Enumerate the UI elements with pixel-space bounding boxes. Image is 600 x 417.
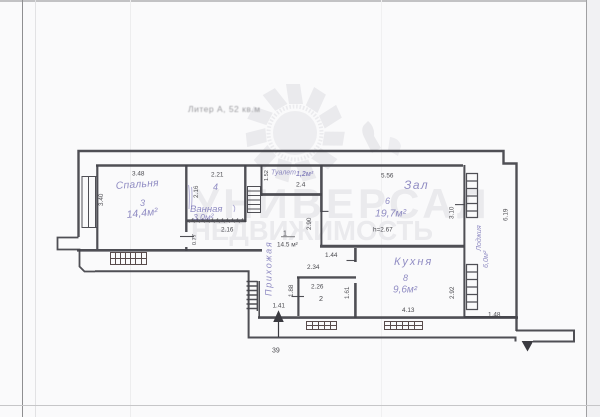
- svg-text:6,0м²: 6,0м²: [481, 250, 490, 268]
- svg-text:Спальня: Спальня: [115, 178, 159, 192]
- svg-text:Лоджия: Лоджия: [474, 225, 483, 252]
- svg-text:3,0м²: 3,0м²: [193, 212, 215, 222]
- svg-text:0.77: 0.77: [192, 234, 198, 245]
- svg-text:2.26: 2.26: [311, 284, 324, 291]
- svg-text:Зал: Зал: [404, 178, 429, 192]
- svg-text:1.52: 1.52: [264, 170, 270, 181]
- svg-text:1.61: 1.61: [344, 286, 351, 299]
- svg-text:4.13: 4.13: [402, 307, 415, 314]
- svg-text:2.21: 2.21: [211, 172, 224, 179]
- svg-text:4: 4: [213, 182, 218, 192]
- svg-text:8: 8: [403, 273, 408, 283]
- svg-text:1.48: 1.48: [488, 312, 501, 319]
- svg-text:1.41: 1.41: [273, 303, 286, 310]
- svg-text:Кухня: Кухня: [394, 256, 433, 268]
- svg-text:2.90: 2.90: [306, 217, 313, 230]
- svg-text:14,4м²: 14,4м²: [126, 206, 159, 221]
- svg-text:39: 39: [272, 348, 280, 355]
- svg-text:3.48: 3.48: [132, 171, 145, 178]
- svg-text:2: 2: [319, 294, 323, 303]
- svg-text:2.34: 2.34: [307, 264, 320, 271]
- svg-text:h=2.67: h=2.67: [373, 227, 393, 234]
- svg-text:2.4: 2.4: [296, 182, 306, 189]
- svg-text:5.56: 5.56: [381, 173, 394, 180]
- svg-text:3.40: 3.40: [98, 193, 105, 206]
- svg-text:1,2м²: 1,2м²: [296, 171, 314, 178]
- svg-text:2.16: 2.16: [193, 185, 200, 198]
- svg-text:3.10: 3.10: [449, 206, 456, 219]
- svg-text:1.44: 1.44: [325, 252, 338, 259]
- svg-text:14.5 м²: 14.5 м²: [277, 242, 298, 249]
- svg-text:2.16: 2.16: [221, 227, 234, 234]
- svg-text:Прихожая: Прихожая: [264, 241, 274, 296]
- svg-text:6: 6: [385, 196, 390, 206]
- svg-text:2.92: 2.92: [449, 286, 456, 299]
- svg-text:6.19: 6.19: [503, 208, 510, 221]
- svg-text:Туалет: Туалет: [271, 170, 296, 177]
- svg-text:19,7м²: 19,7м²: [375, 208, 407, 220]
- svg-text:1.88: 1.88: [288, 284, 295, 297]
- svg-text:9,6м²: 9,6м²: [393, 285, 418, 296]
